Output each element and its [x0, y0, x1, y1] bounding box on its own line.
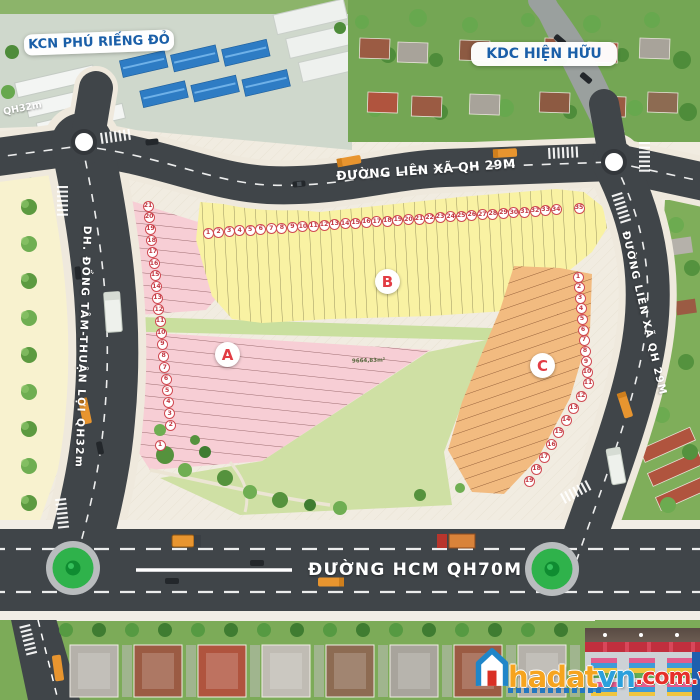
lot-number-C12: 12 [576, 391, 587, 402]
lot-number-B5: 5 [245, 225, 256, 236]
lot-number-B11: 11 [308, 221, 319, 232]
watermark-logo: hadat vn .com.vn [474, 644, 700, 690]
house-roof-highlight [142, 653, 174, 689]
house-icon [469, 94, 500, 115]
tree-icon [627, 100, 643, 116]
lot-number-B16: 16 [361, 217, 372, 228]
lot-number-B34: 34 [551, 204, 562, 215]
driveway [122, 645, 132, 697]
tree-icon [21, 348, 29, 356]
truck-icon [172, 535, 201, 547]
lot-number-B1: 1 [203, 228, 214, 239]
lot-number-B12: 12 [319, 220, 330, 231]
lot-number-C9: 9 [581, 356, 592, 367]
tree-icon [191, 623, 205, 637]
tree-icon [521, 13, 535, 27]
lot-number-B25: 25 [456, 211, 467, 222]
watermark-brand-head: hadat [508, 665, 597, 690]
lot-number-C3: 3 [575, 293, 586, 304]
lot-number-C19: 19 [524, 476, 535, 487]
watermark-brand-tail: vn [597, 665, 635, 690]
car-icon [165, 578, 179, 584]
road-label-bottom: ĐƯỜNG HCM QH70M [308, 560, 522, 580]
store-ceiling [585, 628, 700, 642]
tree-icon [158, 623, 172, 637]
lot-number-B18: 18 [382, 216, 393, 227]
container-truck-icon [437, 534, 475, 548]
lot-number-A11: 11 [155, 316, 166, 327]
map-base [0, 0, 700, 700]
tree-icon [455, 623, 469, 637]
watermark-tagline [508, 688, 604, 693]
lot-number-B29: 29 [498, 208, 509, 219]
tree-icon [462, 17, 478, 33]
lot-number-A9: 9 [157, 339, 168, 350]
house-icon [474, 644, 510, 690]
tree-icon [355, 15, 369, 29]
lot-number-B2: 2 [213, 227, 224, 238]
lot-number-B22: 22 [424, 213, 435, 224]
lot-number-C4: 4 [576, 303, 587, 314]
lot-number-C1: 1 [573, 272, 584, 283]
driveway [186, 645, 196, 697]
lot-number-A20: 20 [144, 212, 155, 223]
roundabout-bottom-left [46, 541, 100, 595]
lot-number-A4: 4 [163, 397, 174, 408]
master-plan-map: KCN PHÚ RIẾNG ĐỎ KDC HIỆN HỮU ĐƯỜNG LIÊN… [0, 0, 700, 700]
park-area-label: 9664,83m² [352, 357, 385, 364]
tree-icon [356, 623, 370, 637]
lot-number-B28: 28 [487, 209, 498, 220]
lot-number-A8: 8 [158, 351, 169, 362]
lot-number-A5: 5 [162, 385, 173, 396]
lot-number-B14: 14 [340, 218, 351, 229]
lot-number-C2: 2 [574, 282, 585, 293]
lot-number-A17: 17 [147, 247, 158, 258]
lot-number-B32: 32 [530, 206, 541, 217]
tree-icon [678, 354, 694, 370]
tree-icon [323, 623, 337, 637]
lot-number-C14: 14 [561, 415, 572, 426]
house-roof-highlight [398, 653, 430, 689]
lot-number-B15: 15 [350, 218, 361, 229]
tree-icon [92, 623, 106, 637]
tree-icon [644, 12, 660, 28]
lot-number-A10: 10 [156, 328, 167, 339]
house-icon [397, 42, 428, 63]
lot-number-A6: 6 [161, 374, 172, 385]
lot-number-A16: 16 [149, 258, 160, 269]
tree-icon [59, 623, 73, 637]
tree-icon [488, 623, 502, 637]
tree-icon [21, 422, 29, 430]
house-icon [359, 38, 390, 59]
driveway [378, 645, 388, 697]
lot-number-B31: 31 [519, 207, 530, 218]
lot-number-A21: 21 [143, 201, 154, 212]
tree-icon [389, 623, 403, 637]
tree-icon [684, 260, 700, 276]
tree-icon [21, 237, 29, 245]
house-icon [539, 92, 570, 113]
lot-number-B23: 23 [435, 212, 446, 223]
lot-number-A15: 15 [150, 270, 161, 281]
lot-number-B9: 9 [287, 222, 298, 233]
lot-number-C13: 13 [568, 403, 579, 414]
lot-number-A1: 1 [155, 440, 166, 451]
tree-icon [422, 623, 436, 637]
tree-icon [673, 51, 691, 69]
driveway [442, 645, 452, 697]
kdc-hien-huu-label: KDC HIỆN HỮU [471, 42, 617, 66]
driveway [250, 645, 260, 697]
tree-icon [679, 103, 697, 121]
lot-number-C6: 6 [578, 325, 589, 336]
lot-number-A13: 13 [152, 293, 163, 304]
tree-icon [21, 496, 29, 504]
tree-icon [554, 623, 568, 637]
house-icon [639, 38, 670, 59]
roundabout-top-left [71, 129, 97, 155]
house-roof-highlight [334, 653, 366, 689]
lot-number-C7: 7 [579, 335, 590, 346]
lot-number-B21: 21 [414, 214, 425, 225]
zone-c-badge: C [530, 353, 555, 378]
lot-number-C18: 18 [531, 464, 542, 475]
tree-icon [290, 623, 304, 637]
house-icon [411, 96, 442, 117]
tree-icon [660, 497, 676, 513]
house-roof-highlight [78, 653, 110, 689]
tree-icon [21, 385, 29, 393]
house-roof-highlight [206, 653, 238, 689]
lot-number-B8: 8 [276, 223, 287, 234]
zone-a-badge: A [215, 342, 240, 367]
car-icon [250, 560, 264, 566]
tree-icon [21, 311, 29, 319]
tree-icon [409, 9, 427, 27]
roundabout-top-right [601, 149, 627, 175]
zone-b-badge: B [375, 269, 400, 294]
house-icon [647, 92, 678, 113]
lot-number-C11: 11 [583, 378, 594, 389]
tree-icon [21, 274, 29, 282]
lot-number-C17: 17 [539, 452, 550, 463]
lot-number-B35: 35 [574, 203, 585, 214]
tree-icon [668, 217, 684, 233]
tree-icon [682, 444, 698, 460]
house-roof-highlight [270, 653, 302, 689]
tree-icon [583, 15, 601, 33]
lot-number-B3: 3 [224, 226, 235, 237]
driveway [314, 645, 324, 697]
lot-number-C8: 8 [580, 346, 591, 357]
watermark-domain: .com.vn [635, 669, 700, 690]
tree-icon [224, 623, 238, 637]
tree-icon [21, 459, 29, 467]
lot-number-C5: 5 [577, 314, 588, 325]
tree-icon [125, 623, 139, 637]
lot-number-A19: 19 [145, 224, 156, 235]
tree-icon [21, 200, 29, 208]
roundabout-bottom-right [525, 542, 579, 596]
tree-icon [429, 53, 443, 67]
tree-icon [521, 623, 535, 637]
truck-icon [104, 291, 123, 332]
house-icon [367, 92, 398, 113]
tree-icon [257, 623, 271, 637]
lot-number-C10: 10 [582, 367, 593, 378]
